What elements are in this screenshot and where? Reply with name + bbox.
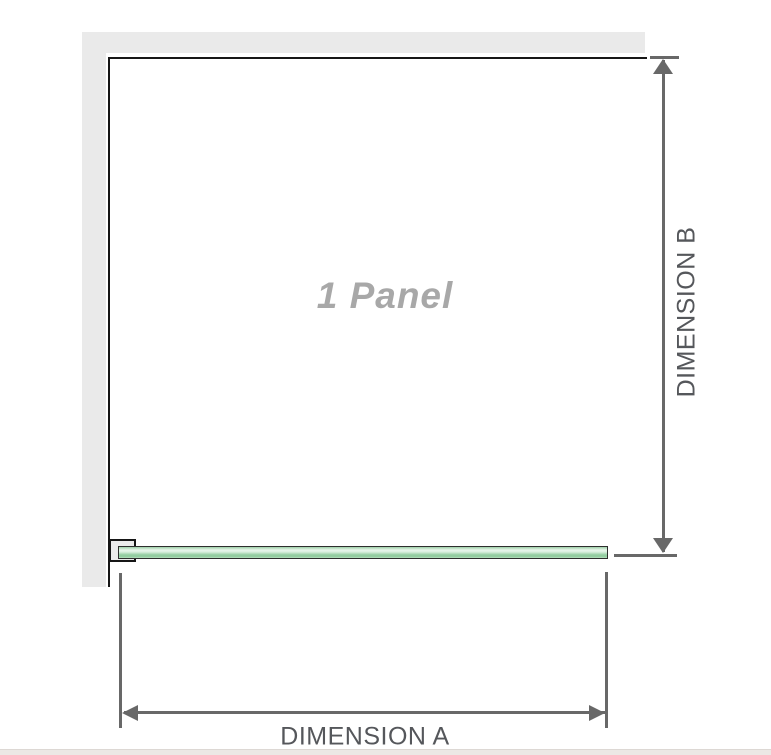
- wall-top-bar: [82, 32, 645, 53]
- glass-panel-bar: [118, 546, 608, 559]
- dimension-b-arrow-down-icon: [653, 538, 673, 553]
- dimension-b-arrow-up-icon: [653, 59, 673, 74]
- panel-outline-top: [108, 57, 647, 59]
- panel-outline-left: [108, 57, 110, 587]
- dimension-a-arrow-left-icon: [122, 705, 138, 721]
- dimension-a-arrow-right-icon: [589, 705, 605, 721]
- panel-label: 1 Panel: [317, 275, 454, 317]
- dimension-a-label: DIMENSION A: [280, 723, 449, 752]
- wall-left-bar: [82, 32, 106, 587]
- dimension-a-line: [124, 711, 605, 714]
- dimension-b-line: [662, 60, 665, 552]
- dimension-a-extension-right: [605, 572, 608, 728]
- dimension-b-cap-bottom: [614, 554, 677, 557]
- dimension-b-label: DIMENSION B: [673, 227, 702, 398]
- panel-dimension-diagram: 1 Panel DIMENSION B DIMENSION A: [0, 0, 771, 755]
